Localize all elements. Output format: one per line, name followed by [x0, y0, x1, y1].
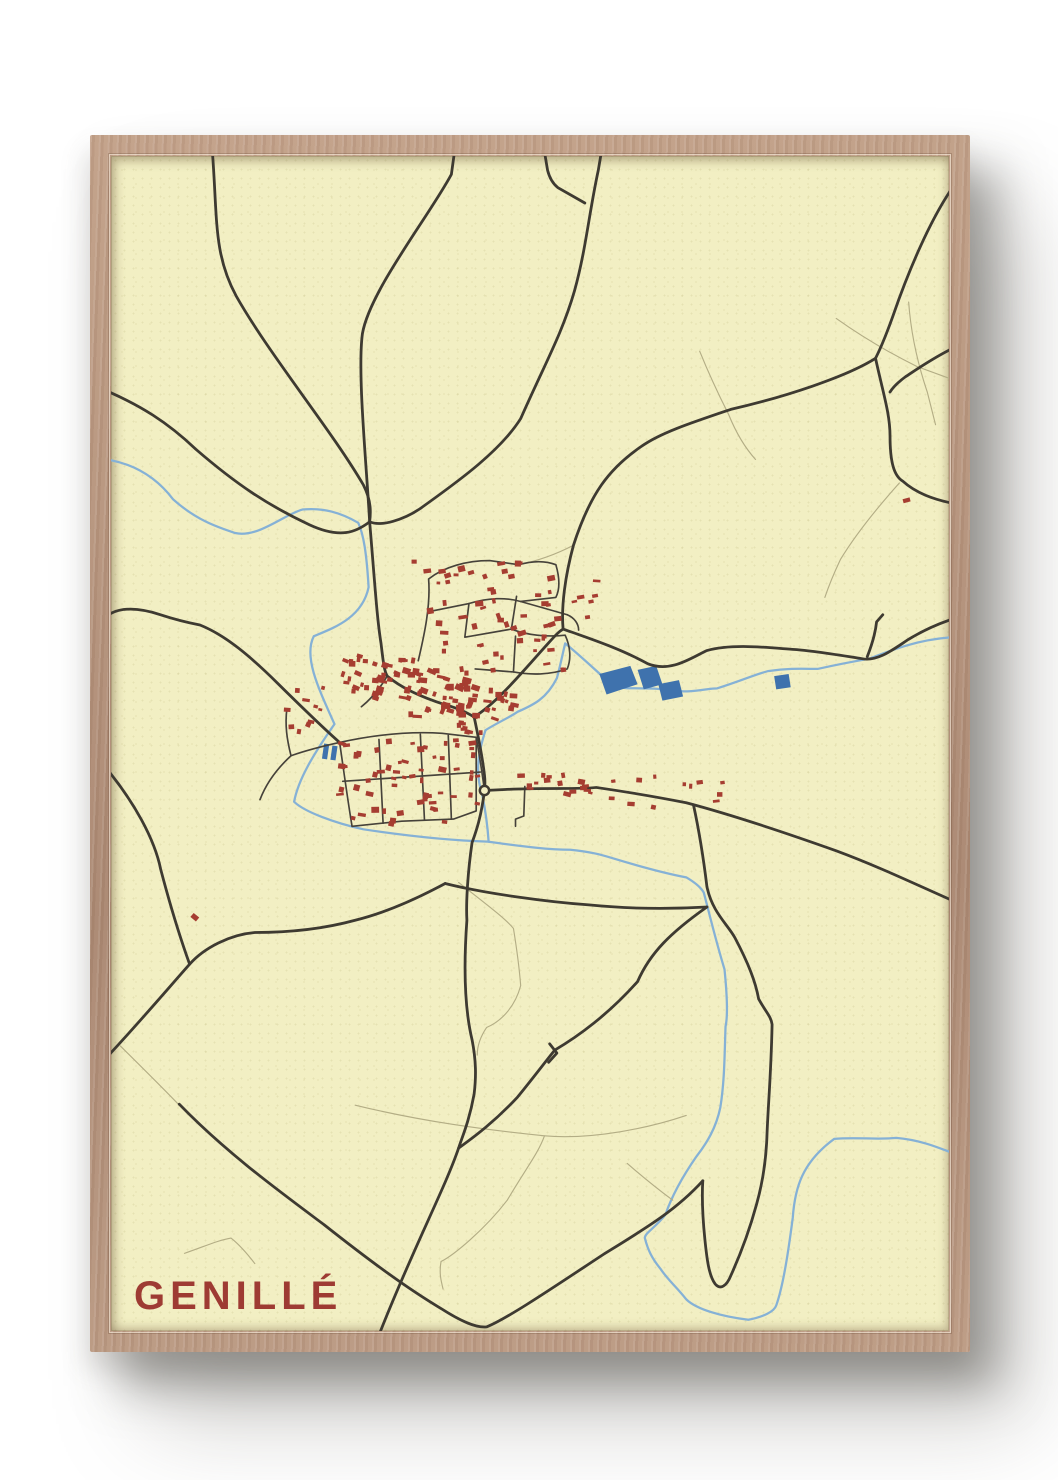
town-map — [111, 156, 949, 1331]
major-roads-layer — [111, 156, 949, 1331]
roundabout-layer — [480, 786, 489, 795]
faint-roads-layer — [120, 302, 949, 1289]
map-poster: GENILLÉ — [111, 156, 949, 1331]
buildings-layer — [190, 497, 910, 921]
poster-title: GENILLÉ — [134, 1276, 342, 1316]
rivers-layer — [111, 459, 949, 1319]
wall-background: GENILLÉ — [0, 0, 1058, 1480]
poster-frame: GENILLÉ — [90, 135, 970, 1352]
